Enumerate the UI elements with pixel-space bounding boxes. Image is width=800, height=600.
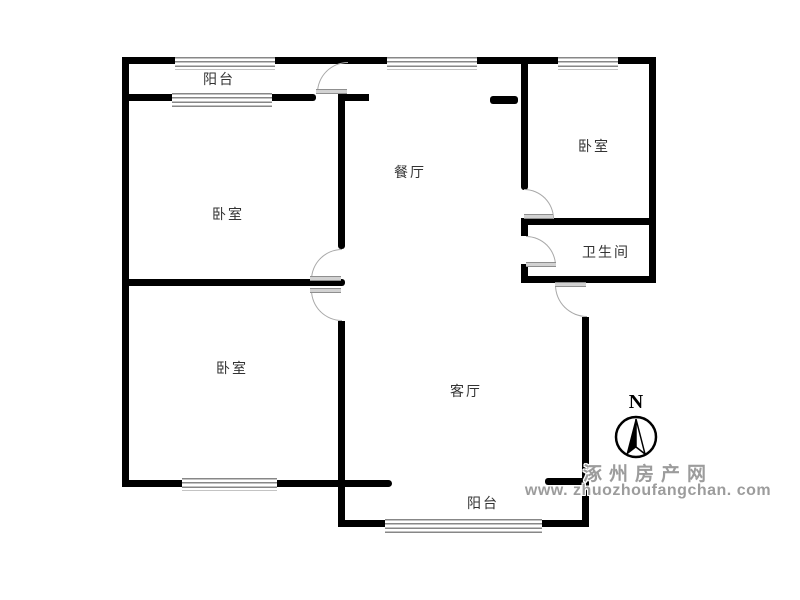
room-label-dining: 餐厅: [394, 162, 426, 182]
wall-bathroom-door-stub-upper: [521, 225, 528, 236]
wall-balcony-top-inner-right: [345, 94, 369, 101]
wall-entry-dash-stub: [490, 96, 518, 104]
window-bedroom-upper-left: [172, 93, 272, 108]
window-dining-room: [387, 57, 477, 70]
room-label-bedroom-upper-left: 卧室: [212, 204, 244, 224]
floor-plan-canvas: 阳台 卧室 卧室 餐厅 客厅 卧室 卫生间 阳台 N 涿州房产网 www. zh…: [0, 0, 800, 600]
wall-bathroom-top: [521, 218, 656, 225]
window-bedroom-lower-left: [182, 478, 277, 491]
room-label-balcony-top: 阳台: [203, 69, 235, 89]
room-label-balcony-bottom: 阳台: [467, 493, 499, 513]
door-arc-entry: [555, 285, 587, 317]
room-label-bathroom: 卫生间: [582, 242, 630, 262]
north-compass-icon: [612, 413, 660, 461]
north-letter: N: [612, 392, 660, 412]
wall-bathroom-bottom: [521, 276, 656, 283]
room-label-bedroom-lower-left: 卧室: [216, 358, 248, 378]
door-leaf-balcony-top: [316, 89, 347, 94]
wall-right-exterior: [649, 57, 656, 283]
window-balcony-bottom: [385, 519, 542, 534]
watermark-site-url: www. zhuozhoufangchan. com: [516, 482, 780, 500]
door-arc-bedroom-lower-left: [311, 290, 342, 321]
room-label-living: 客厅: [450, 381, 482, 401]
wall-balcony-bottom-right: [541, 520, 589, 527]
window-bedroom-right: [558, 57, 618, 70]
door-leaf-bathroom: [526, 262, 556, 267]
wall-center-vertical-upper: [338, 94, 345, 249]
wall-balcony-bottom-left: [338, 520, 387, 527]
room-label-bedroom-right: 卧室: [578, 136, 610, 156]
door-leaf-bedroom-upper-left: [310, 276, 341, 281]
door-leaf-entry: [555, 282, 586, 287]
wall-center-vertical-lower: [338, 321, 345, 527]
wall-left-exterior: [122, 57, 129, 487]
door-leaf-bedroom-right: [524, 214, 553, 219]
wall-bedroom-right-left: [521, 57, 528, 190]
door-leaf-bedroom-lower-left: [310, 288, 341, 293]
